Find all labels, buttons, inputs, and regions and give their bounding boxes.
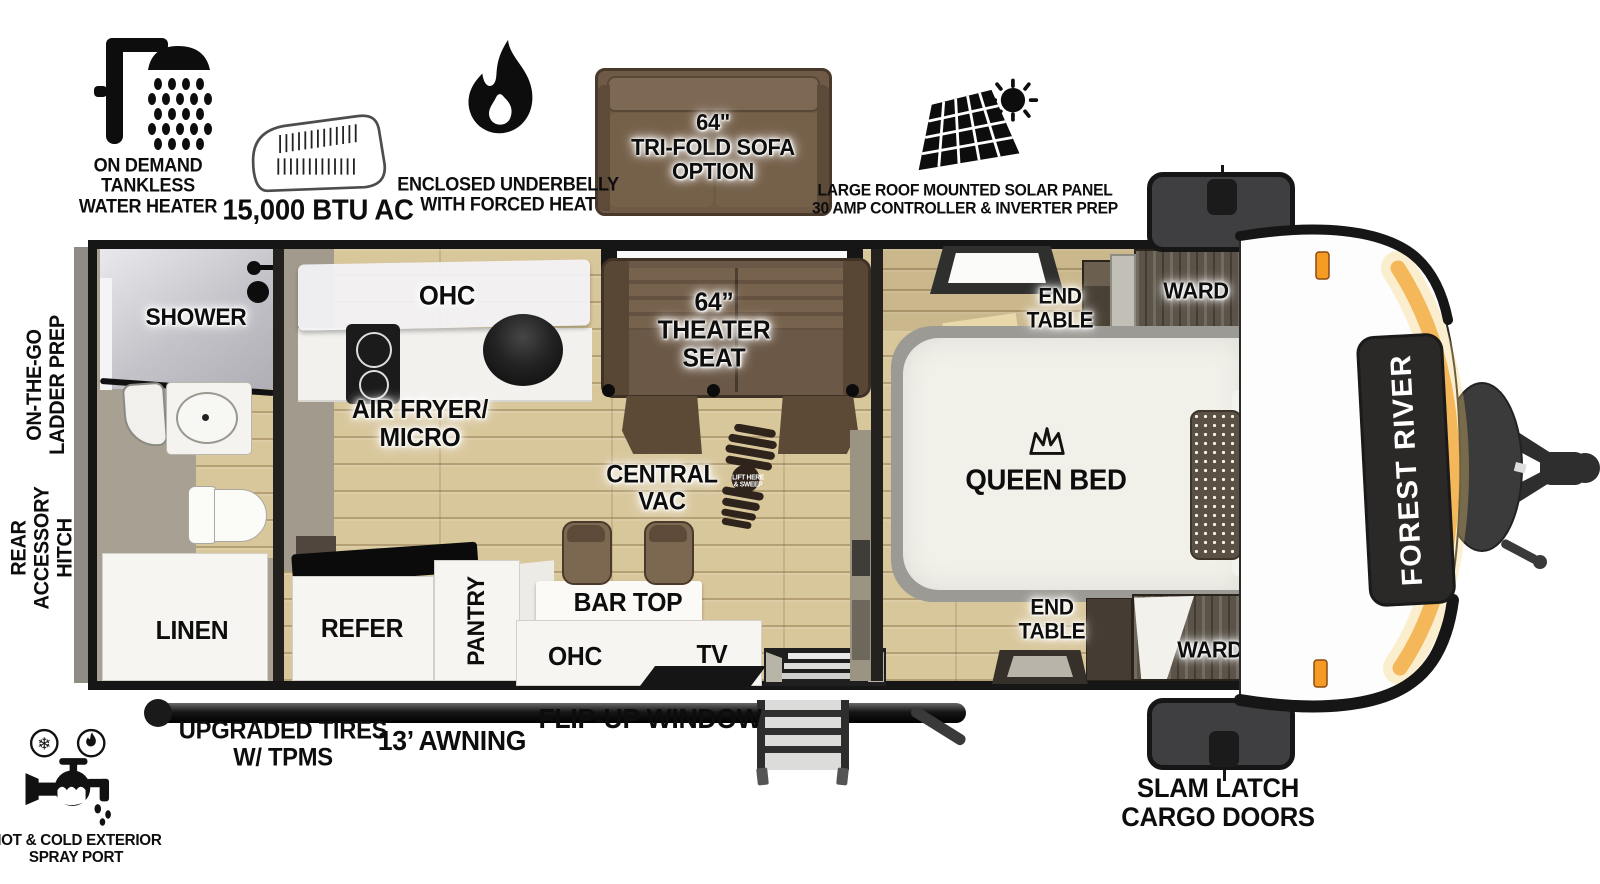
bar-top-label: BAR TOP xyxy=(574,589,683,617)
ac-unit-icon xyxy=(238,108,396,198)
cupholder xyxy=(602,384,615,397)
end-table-top-label: END TABLE xyxy=(1027,284,1094,331)
bar-stool xyxy=(644,521,694,585)
bedroom-side-cabinet xyxy=(1086,598,1132,681)
underbelly-label: ENCLOSED UNDERBELLY WITH FORCED HEAT xyxy=(397,176,619,217)
shower-icon xyxy=(92,20,242,155)
ac-label: 15,000 BTU AC xyxy=(222,195,413,226)
bar-ohc-label: OHC xyxy=(548,643,602,671)
shower-head-plan-icon xyxy=(236,256,276,308)
shower-label: SHOWER xyxy=(146,305,247,331)
bar-stool xyxy=(562,521,612,585)
flame-icon xyxy=(458,38,558,166)
cupholder xyxy=(707,384,720,397)
spray-port-icon: ❄ xyxy=(18,726,140,826)
kitchen-sink xyxy=(483,314,563,386)
marker-light xyxy=(1314,660,1327,687)
exterior-ladder xyxy=(757,700,849,770)
end-table-bottom xyxy=(992,650,1088,684)
cooktop xyxy=(346,324,400,404)
floorplan-page: ON DEMAND TANKLESS WATER HEATER 15,000 B… xyxy=(0,0,1600,884)
wall-bath-kitchen xyxy=(273,249,284,681)
tires-label: UPGRADED TIRES W/ TPMS xyxy=(179,717,387,771)
rear-hitch-label: REAR ACCESSORY HITCH xyxy=(7,486,76,609)
awning-label: 13’ AWNING xyxy=(378,726,526,756)
halfwall-cabinet xyxy=(852,600,870,660)
crown-icon xyxy=(1026,424,1068,460)
marker-light xyxy=(1316,252,1329,279)
air-fryer-label: AIR FRYER/ MICRO xyxy=(352,396,488,452)
water-heater-label: ON DEMAND TANKLESS WATER HEATER xyxy=(79,157,217,218)
end-table-bottom-label: END TABLE xyxy=(1019,595,1086,642)
central-vac-label: CENTRAL VAC xyxy=(606,461,717,515)
boot-print-text: LIFT HERE & SWEEP xyxy=(732,475,764,490)
ladder-foot xyxy=(836,767,849,785)
sofa-option-label: 64" TRI-FOLD SOFA OPTION xyxy=(631,110,795,184)
vanity-sink xyxy=(166,382,252,455)
spray-port-label: HOT & COLD EXTERIOR SPRAY PORT xyxy=(0,832,162,866)
refer-label: REFER xyxy=(321,615,403,643)
svg-text:❄: ❄ xyxy=(37,734,51,754)
awning-end-cap xyxy=(144,699,172,727)
shower-lip xyxy=(100,278,112,390)
flip-window-label: FLIP-UP WINDOW xyxy=(538,704,761,734)
halfwall-cabinet xyxy=(852,540,870,576)
wardrobe-top-side xyxy=(1110,254,1136,330)
ohc-label: OHC xyxy=(419,282,475,311)
front-cap: FOREST RIVER xyxy=(1180,150,1600,790)
ladder-prep-label: ON-THE-GO LADDER PREP xyxy=(23,315,69,455)
seat-footrest xyxy=(622,396,702,454)
brand-badge: FOREST RIVER xyxy=(1357,334,1455,606)
ladder-foot xyxy=(756,767,769,785)
theater-seat-label: 64” THEATER SEAT xyxy=(658,288,771,371)
linen-label: LINEN xyxy=(156,617,229,645)
wall-living-bedroom xyxy=(871,249,883,681)
queen-bed-label: QUEEN BED xyxy=(965,465,1126,496)
solar-panel-icon xyxy=(900,78,1040,182)
seat-footrest xyxy=(778,396,858,454)
pantry-label: PANTRY xyxy=(464,576,490,665)
solar-label: LARGE ROOF MOUNTED SOLAR PANEL 30 AMP CO… xyxy=(812,182,1118,217)
cupholder xyxy=(846,384,859,397)
toilet-bowl xyxy=(214,489,267,542)
tv-label: TV xyxy=(697,641,728,669)
